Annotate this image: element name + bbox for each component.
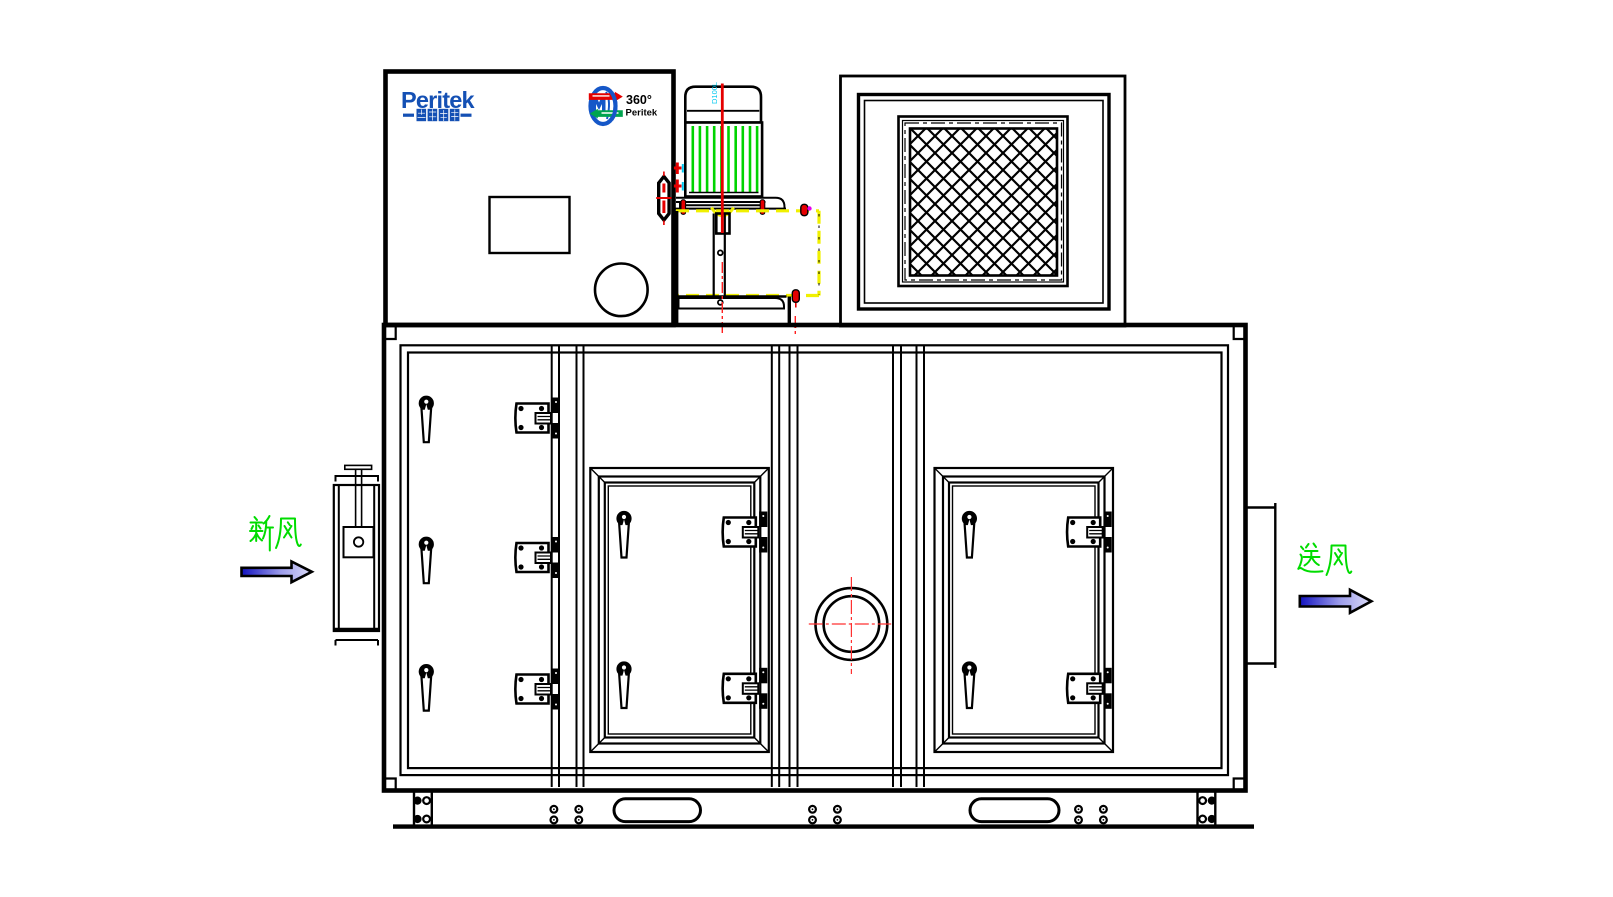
svg-text:D100L: D100L (710, 82, 719, 104)
svg-text:Peritek: Peritek (401, 87, 476, 113)
svg-text:360°: 360° (626, 93, 652, 107)
svg-text:Peritek: Peritek (626, 108, 658, 119)
